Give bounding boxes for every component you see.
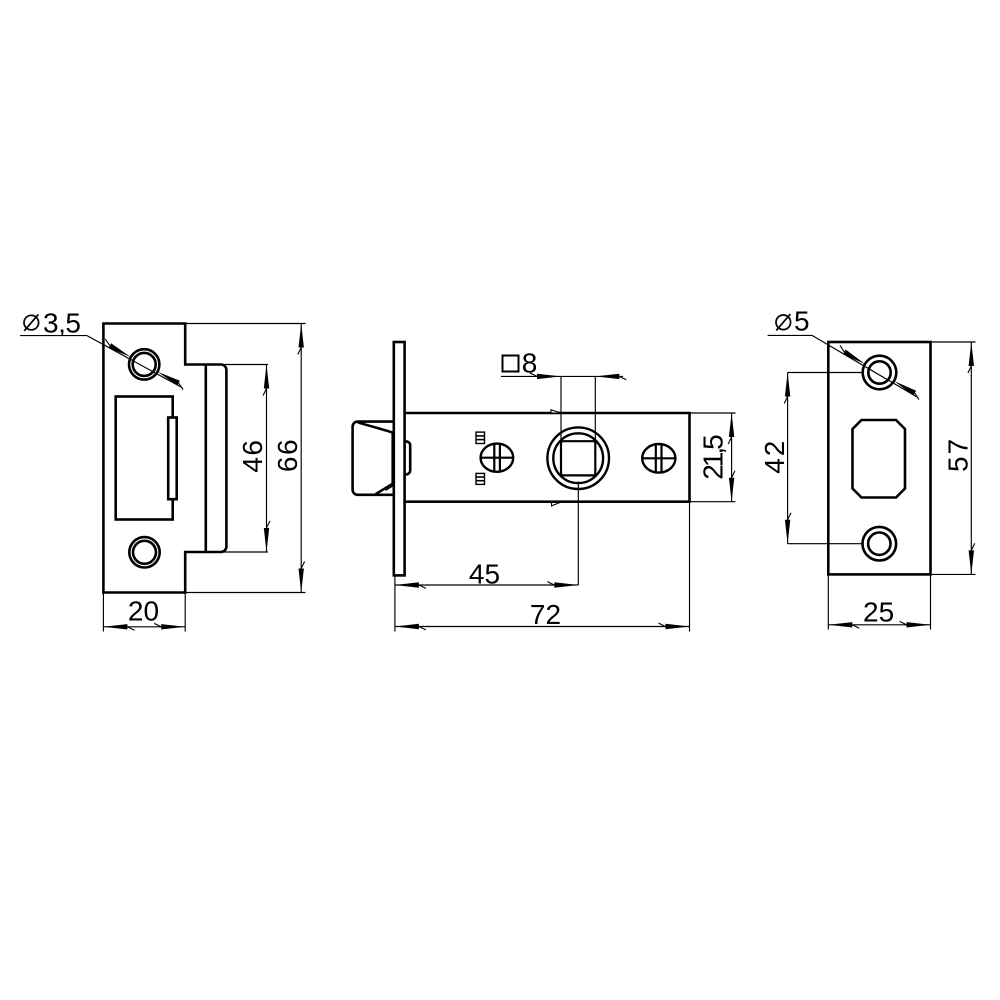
svg-text:72: 72	[530, 599, 561, 630]
svg-text:21,5: 21,5	[698, 435, 729, 480]
svg-text:57: 57	[943, 437, 974, 472]
svg-text:20: 20	[128, 596, 159, 627]
svg-text:42: 42	[759, 439, 790, 474]
svg-text:46: 46	[237, 439, 268, 473]
svg-text:66: 66	[272, 438, 303, 472]
svg-text:5: 5	[794, 306, 810, 337]
svg-text:25: 25	[863, 596, 894, 627]
svg-text:8: 8	[522, 348, 538, 379]
svg-text:45: 45	[469, 559, 500, 590]
svg-text:3,5: 3,5	[43, 307, 80, 338]
